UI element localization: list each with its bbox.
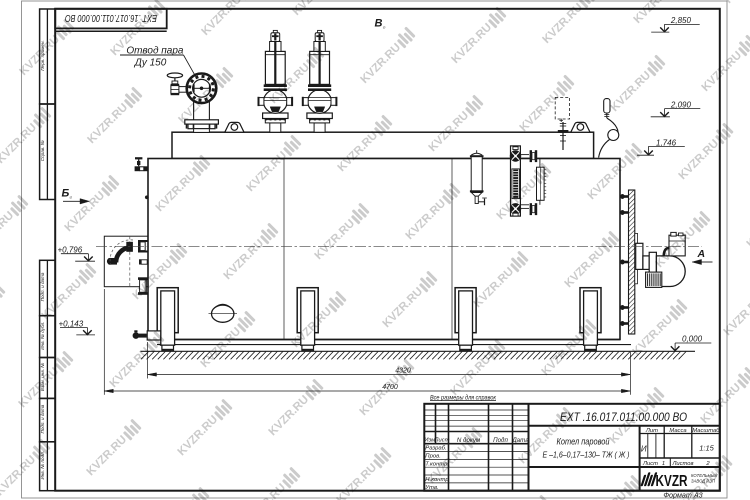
svg-text:Утв.: Утв.	[424, 485, 438, 491]
svg-text:0,000: 0,000	[682, 335, 703, 344]
svg-text:В: В	[375, 18, 383, 30]
svg-text:Лит: Лит	[645, 428, 658, 434]
svg-text:Подп. и дата: Подп. и дата	[40, 404, 45, 433]
svg-text:Подп. и дата: Подп. и дата	[40, 272, 45, 301]
svg-text:1:15: 1:15	[699, 444, 714, 453]
svg-text:Е –1,6–0,17–130– ТЖ ( Ж ): Е –1,6–0,17–130– ТЖ ( Ж )	[543, 450, 630, 460]
svg-text:2,850: 2,850	[670, 16, 692, 25]
svg-text:Лист: Лист	[642, 461, 658, 467]
svg-text:Справ. №: Справ. №	[40, 140, 45, 161]
svg-text:Ду 150: Ду 150	[134, 58, 167, 69]
svg-text:+0,143: +0,143	[59, 319, 84, 328]
svg-text:Пров.: Пров.	[425, 454, 441, 460]
svg-text:+0,796: +0,796	[58, 246, 83, 255]
svg-text:Разраб.: Разраб.	[425, 446, 446, 452]
svg-text:Котел паровой: Котел паровой	[557, 437, 610, 447]
svg-text:⌀: ⌀	[70, 194, 73, 199]
svg-text:2,090: 2,090	[670, 100, 692, 109]
svg-text:KVZR: KVZR	[656, 473, 688, 490]
svg-text:1: 1	[662, 461, 665, 467]
svg-text:Дата: Дата	[511, 437, 529, 444]
svg-text:Инв. № дубл.: Инв. № дубл.	[40, 321, 45, 349]
svg-text:А: А	[697, 248, 706, 260]
svg-text:Подп: Подп	[493, 437, 508, 444]
svg-text:Масса: Масса	[669, 428, 687, 434]
svg-text:Листов: Листов	[671, 461, 693, 467]
svg-text:И: И	[641, 445, 647, 454]
svg-text:Масштаб: Масштаб	[692, 428, 720, 434]
svg-text:Все размеры для справок: Все размеры для справок	[430, 393, 497, 401]
svg-text:Лист: Лист	[434, 438, 450, 444]
svg-text:⌀: ⌀	[383, 24, 386, 29]
svg-text:Б: Б	[62, 187, 70, 199]
